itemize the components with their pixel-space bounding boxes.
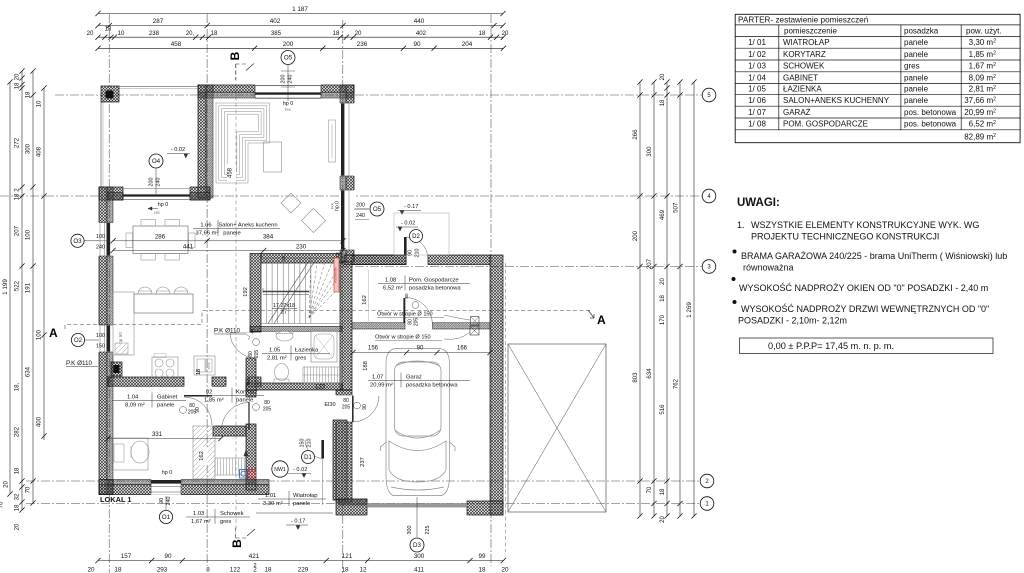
svg-text:238: 238 (149, 30, 160, 37)
svg-text:1/ 06: 1/ 06 (748, 96, 766, 105)
svg-text:207: 207 (14, 225, 21, 236)
svg-text:1/ 03: 1/ 03 (748, 62, 766, 71)
svg-text:3,30 m²: 3,30 m² (263, 501, 283, 507)
svg-text:Otwór w stropie Ø 150: Otwór w stropie Ø 150 (377, 312, 433, 318)
svg-text:18: 18 (333, 30, 340, 37)
svg-text:WIATROŁAP: WIATROŁAP (783, 38, 830, 47)
svg-text:634: 634 (25, 366, 32, 377)
svg-text:20: 20 (355, 30, 362, 37)
svg-text:421: 421 (249, 553, 260, 560)
svg-text:20,: 20, (186, 30, 195, 37)
svg-text:82,89 m2: 82,89 m2 (964, 132, 996, 141)
svg-text:ŁAZIENKA: ŁAZIENKA (783, 85, 822, 94)
svg-text:90: 90 (413, 41, 421, 48)
svg-text:70: 70 (0, 501, 5, 508)
svg-text:27: 27 (281, 310, 287, 316)
svg-text:hp 0: hp 0 (335, 201, 341, 211)
svg-text:18: 18 (25, 91, 32, 98)
svg-text:150: 150 (300, 439, 306, 448)
svg-text:Rurświetlik: Rurświetlik (334, 267, 338, 283)
svg-text:634: 634 (646, 368, 653, 379)
svg-text:20: 20 (659, 278, 666, 285)
svg-text:229: 229 (298, 567, 309, 573)
svg-text:1,67 m2: 1,67 m2 (969, 62, 996, 71)
svg-text:240: 240 (156, 178, 162, 187)
svg-text:1/ 05: 1/ 05 (748, 85, 766, 94)
svg-text:20: 20 (3, 481, 10, 488)
svg-text:192: 192 (243, 287, 249, 297)
svg-text:272: 272 (14, 137, 21, 148)
svg-text:równoważna: równoważna (743, 263, 794, 273)
svg-text:WSZYSTKIE ELEMENTY KONSTRUKCYJ: WSZYSTKIE ELEMENTY KONSTRUKCYJNE WYK. WG (751, 220, 979, 230)
svg-text:200: 200 (283, 41, 294, 48)
svg-text:80: 80 (264, 400, 270, 406)
svg-text:210: 210 (415, 249, 421, 258)
svg-text:Garaż: Garaż (406, 375, 422, 381)
svg-text:El30: El30 (324, 402, 335, 408)
svg-text:1/ 04: 1/ 04 (748, 73, 766, 82)
svg-text:411: 411 (414, 567, 425, 573)
svg-text:240: 240 (96, 245, 105, 251)
svg-text:PROJEKTU TECHNICZNEGO KONSTRUK: PROJEKTU TECHNICZNEGO KONSTRUKCJI (751, 232, 939, 242)
svg-text:2,81 m²: 2,81 m² (267, 356, 287, 362)
svg-text:pos. betonowa: pos. betonowa (904, 120, 957, 129)
svg-text:90: 90 (362, 404, 368, 410)
svg-text:240: 240 (356, 213, 365, 219)
svg-text:gres: gres (220, 519, 231, 525)
svg-text:236: 236 (357, 41, 368, 48)
svg-text:panele: panele (904, 73, 929, 82)
svg-text:100: 100 (96, 333, 105, 339)
svg-text:18: 18 (105, 26, 112, 33)
svg-text:20,99 m²: 20,99 m² (370, 383, 393, 389)
svg-text:2: 2 (253, 563, 256, 569)
svg-text:pomieszczenie: pomieszczenie (784, 27, 837, 36)
svg-text:B: B (230, 539, 244, 548)
svg-text:hp 90: hp 90 (118, 332, 123, 344)
svg-text:O2: O2 (74, 337, 83, 344)
svg-text:80: 80 (404, 293, 409, 299)
svg-text:205: 205 (254, 350, 260, 359)
svg-text:70: 70 (25, 486, 32, 493)
svg-text:440: 440 (414, 18, 425, 25)
svg-text:BRAMA GARAŻOWA 240/225 - brama: BRAMA GARAŻOWA 240/225 - brama UniTherm … (741, 251, 1007, 261)
svg-text:200: 200 (356, 203, 365, 209)
svg-text:1/ 07: 1/ 07 (748, 108, 766, 117)
svg-text:18: 18 (14, 467, 21, 474)
svg-text:402: 402 (270, 18, 281, 25)
svg-text:O5: O5 (284, 55, 293, 62)
svg-text:HS: HS (154, 211, 160, 215)
svg-text:NW1: NW1 (274, 467, 286, 473)
svg-text:panele: panele (904, 85, 929, 94)
svg-text:205: 205 (342, 405, 351, 411)
svg-text:300: 300 (646, 146, 653, 157)
svg-text:D3: D3 (413, 542, 421, 549)
svg-text:200: 200 (149, 178, 155, 187)
svg-text:pos. betonowa: pos. betonowa (904, 108, 957, 117)
svg-text:90: 90 (159, 498, 165, 504)
svg-text:331: 331 (152, 431, 163, 438)
svg-text:10: 10 (118, 30, 125, 37)
svg-text:32: 32 (14, 493, 21, 500)
svg-text:286: 286 (155, 234, 166, 241)
svg-text:18: 18 (659, 295, 666, 302)
svg-text:18: 18 (479, 30, 486, 37)
svg-text:1 269: 1 269 (686, 302, 693, 318)
svg-text:18: 18 (14, 82, 21, 89)
svg-text:1.03: 1.03 (193, 511, 204, 517)
svg-text:166: 166 (457, 346, 468, 352)
svg-text:18,: 18, (281, 254, 287, 261)
svg-text:P.K Ø110: P.K Ø110 (214, 328, 241, 335)
svg-text:3,30 m2: 3,30 m2 (969, 38, 996, 47)
svg-text:1.01: 1.01 (265, 493, 276, 499)
svg-text:156: 156 (368, 346, 379, 352)
svg-text:1.: 1. (737, 220, 745, 230)
svg-text:18: 18 (114, 567, 122, 573)
svg-text:402: 402 (416, 30, 427, 37)
svg-text:469: 469 (659, 209, 666, 220)
svg-text:458: 458 (228, 167, 234, 178)
svg-text:B: B (228, 51, 242, 60)
svg-text:GARAŻ: GARAŻ (783, 108, 811, 117)
svg-text:8: 8 (206, 567, 210, 573)
svg-text:100: 100 (36, 329, 43, 340)
svg-text:- 0.02: - 0.02 (293, 467, 307, 473)
svg-text:panele: panele (157, 403, 174, 409)
svg-text:posadzka betonowa: posadzka betonowa (409, 286, 461, 292)
svg-text:panele: panele (904, 50, 929, 59)
svg-text:WYSOKOŚĆ NADPROŻY OKIEN OD "0": WYSOKOŚĆ NADPROŻY OKIEN OD "0" POSADZKI … (739, 282, 988, 293)
svg-text:200: 200 (281, 75, 287, 84)
svg-text:122: 122 (230, 567, 241, 573)
svg-text:POM. GOSPODARCZE: POM. GOSPODARCZE (783, 120, 868, 129)
svg-text:230: 230 (296, 244, 307, 251)
svg-text:panele: panele (236, 398, 253, 404)
svg-text:18: 18 (211, 30, 218, 37)
svg-text:18,: 18, (14, 382, 21, 391)
svg-text:18: 18 (14, 504, 21, 511)
svg-text:240: 240 (166, 497, 172, 506)
svg-text:207: 207 (646, 258, 653, 269)
svg-text:18: 18 (196, 369, 202, 375)
svg-text:191: 191 (25, 282, 32, 293)
svg-text:UWAGI:: UWAGI: (737, 197, 780, 209)
svg-text:panele: panele (223, 231, 240, 237)
svg-text:panele: panele (904, 96, 929, 105)
svg-text:385: 385 (271, 30, 282, 37)
svg-text:37,66 m2: 37,66 m2 (964, 96, 996, 105)
svg-text:157: 157 (121, 553, 132, 560)
svg-text:1.04: 1.04 (127, 395, 139, 401)
svg-text:300: 300 (414, 553, 425, 560)
svg-text:zlew: zlew (207, 362, 211, 369)
svg-text:20: 20 (502, 30, 509, 37)
svg-text:63: 63 (246, 378, 252, 384)
svg-text:gres: gres (904, 62, 920, 71)
svg-text:1.08: 1.08 (385, 278, 396, 284)
svg-text:18: 18 (264, 567, 272, 573)
svg-text:POSADZKI - 2,10m- 2,12m: POSADZKI - 2,10m- 2,12m (738, 316, 847, 326)
svg-text:204: 204 (462, 41, 473, 48)
svg-text:1,85 m²: 1,85 m² (204, 398, 224, 404)
svg-text:170: 170 (659, 314, 666, 325)
svg-text:99: 99 (478, 553, 486, 560)
svg-text:GABINET: GABINET (783, 73, 818, 82)
svg-text:293: 293 (157, 567, 168, 573)
svg-text:Łazienka: Łazienka (295, 348, 319, 354)
svg-text:posadzka betonowa: posadzka betonowa (406, 383, 458, 389)
svg-text:225: 225 (425, 526, 431, 535)
svg-text:1.07: 1.07 (372, 375, 383, 381)
svg-text:P.K Ø110: P.K Ø110 (66, 360, 93, 367)
svg-text:300: 300 (407, 526, 413, 535)
svg-text:KORYTARZ: KORYTARZ (783, 50, 826, 59)
svg-text:gres: gres (295, 356, 306, 362)
svg-text:20: 20 (14, 73, 21, 80)
svg-text:02: 02 (206, 390, 212, 396)
svg-text:507: 507 (673, 202, 680, 213)
svg-text:516: 516 (659, 404, 666, 415)
svg-text:Salon+ Aneks kuchenn: Salon+ Aneks kuchenn (218, 223, 277, 229)
svg-text:210: 210 (307, 439, 313, 448)
svg-text:188: 188 (363, 361, 369, 371)
svg-text:18: 18 (335, 252, 341, 258)
svg-text:282: 282 (14, 426, 21, 437)
svg-text:1/ 02: 1/ 02 (748, 50, 766, 59)
svg-text:Otwór w stropie Ø 150: Otwór w stropie Ø 150 (375, 335, 431, 341)
svg-text:Korytarz: Korytarz (236, 390, 258, 396)
svg-text:hp 0: hp 0 (283, 101, 294, 107)
svg-text:162: 162 (362, 295, 368, 305)
svg-text:44: 44 (250, 328, 256, 334)
svg-text:762: 762 (673, 378, 680, 389)
svg-text:Gabinet: Gabinet (157, 395, 178, 401)
svg-text:Pom. Gospodarcze: Pom. Gospodarcze (409, 278, 459, 284)
svg-text:A: A (49, 326, 58, 340)
svg-text:237: 237 (360, 457, 366, 467)
svg-text:20: 20 (659, 516, 666, 523)
svg-text:162: 162 (199, 451, 205, 461)
svg-text:hp 0: hp 0 (158, 202, 169, 208)
svg-text:panele: panele (293, 501, 310, 507)
svg-text:pow. użyt.: pow. użyt. (966, 27, 1002, 36)
svg-text:0,00 ± P.P.P= 17,45 m. n. p. m: 0,00 ± P.P.P= 17,45 m. n. p. m. (768, 341, 894, 351)
svg-text:6,52 m²: 6,52 m² (383, 286, 403, 292)
svg-text:FIX: FIX (285, 108, 291, 112)
svg-text:1.05: 1.05 (269, 348, 280, 354)
svg-text:SCHOWEK: SCHOWEK (783, 62, 825, 71)
svg-text:10: 10 (36, 100, 43, 107)
svg-text:100: 100 (25, 229, 32, 240)
svg-text:1.06: 1.06 (200, 223, 211, 229)
svg-text:SALON+ANEKS KUCHENNY: SALON+ANEKS KUCHENNY (783, 96, 890, 105)
svg-text:384: 384 (263, 234, 274, 241)
svg-text:70: 70 (646, 486, 653, 493)
svg-text:- 0.17: - 0.17 (291, 519, 305, 525)
svg-text:O3: O3 (73, 238, 82, 245)
svg-text:8,09 m2: 8,09 m2 (969, 73, 996, 82)
svg-text:WYSOKOŚĆ NADPROŻY DRZWI WEWNĘT: WYSOKOŚĆ NADPROŻY DRZWI WEWNĘTRZNYCH OD … (741, 303, 989, 314)
svg-text:- 0.02: - 0.02 (171, 147, 185, 153)
svg-text:522: 522 (14, 280, 21, 291)
svg-text:1 199: 1 199 (2, 279, 9, 295)
svg-text:18: 18 (14, 193, 21, 200)
svg-text:panele: panele (904, 38, 929, 47)
svg-text:121: 121 (342, 553, 353, 560)
svg-text:O5: O5 (373, 206, 382, 213)
svg-text:O4: O4 (152, 158, 161, 165)
svg-text:20,99 m2: 20,99 m2 (964, 108, 996, 117)
svg-text:441: 441 (183, 244, 194, 251)
svg-text:18: 18 (478, 567, 486, 573)
svg-text:205: 205 (263, 407, 272, 413)
svg-text:1/ 08: 1/ 08 (748, 120, 766, 129)
svg-text:D2: D2 (412, 234, 420, 240)
svg-text:18: 18 (659, 488, 666, 495)
svg-text:37,66 m²: 37,66 m² (196, 231, 219, 237)
svg-text:2,81 m2: 2,81 m2 (969, 85, 996, 94)
svg-text:287: 287 (153, 18, 164, 25)
svg-text:18: 18 (341, 567, 349, 573)
svg-text:150: 150 (96, 344, 105, 350)
svg-text:- 0.17: - 0.17 (404, 204, 418, 210)
svg-text:803: 803 (632, 372, 639, 383)
svg-text:100: 100 (96, 234, 105, 240)
svg-text:1 187: 1 187 (292, 6, 308, 13)
svg-text:90: 90 (195, 407, 201, 413)
svg-text:Schowek: Schowek (220, 511, 244, 517)
svg-text:posadzka: posadzka (904, 27, 939, 36)
svg-text:20: 20 (659, 73, 666, 80)
svg-text:240: 240 (288, 75, 294, 84)
svg-text:18: 18 (659, 99, 666, 106)
svg-text:80: 80 (343, 398, 349, 404)
svg-text:PARTER- zestawienie pomieszcze: PARTER- zestawienie pomieszczeń (738, 15, 869, 24)
svg-text:1/ 01: 1/ 01 (748, 38, 766, 47)
svg-text:- 0.02: - 0.02 (401, 221, 415, 227)
svg-text:LOKAL 1: LOKAL 1 (100, 495, 131, 504)
svg-text:17 27x18: 17 27x18 (273, 303, 295, 309)
svg-text:300: 300 (25, 143, 32, 154)
svg-text:205: 205 (414, 318, 420, 327)
svg-text:12: 12 (359, 567, 367, 573)
svg-text:6,52 m2: 6,52 m2 (969, 120, 996, 129)
svg-text:408: 408 (36, 146, 43, 157)
svg-text:20: 20 (501, 567, 509, 573)
svg-text:1,67 m²: 1,67 m² (191, 519, 211, 525)
svg-text:Wiatrołap: Wiatrołap (293, 493, 317, 499)
svg-text:1,85 m2: 1,85 m2 (969, 50, 996, 59)
svg-text:458: 458 (171, 41, 182, 48)
svg-text:hp 0: hp 0 (162, 470, 173, 476)
svg-text:90: 90 (417, 346, 424, 352)
svg-text:400: 400 (36, 416, 43, 427)
svg-text:D1: D1 (304, 455, 312, 461)
svg-text:123: 123 (315, 385, 326, 391)
svg-text:266: 266 (632, 129, 639, 140)
svg-text:200: 200 (632, 230, 639, 241)
svg-text:90: 90 (164, 553, 172, 560)
svg-text:8,09 m²: 8,09 m² (125, 403, 145, 409)
svg-text:20: 20 (87, 567, 95, 573)
svg-text:20: 20 (87, 30, 94, 37)
svg-text:20: 20 (14, 523, 21, 530)
svg-text:A: A (597, 313, 606, 327)
svg-text:O1: O1 (162, 514, 171, 521)
